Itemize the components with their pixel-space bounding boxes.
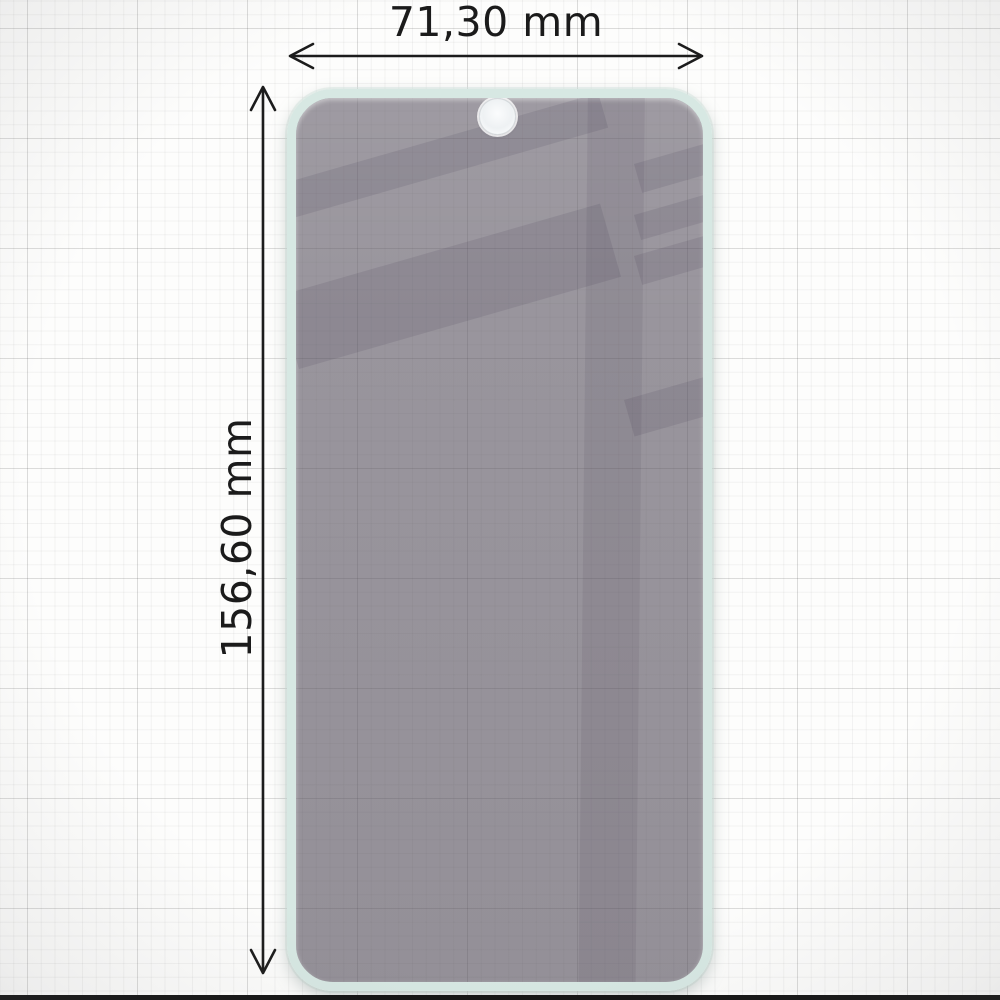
reflection-band-vertical (578, 90, 645, 991)
image-bottom-edge (0, 995, 1000, 1000)
grid-paper-background: 71,30 mm 156,60 mm (0, 0, 1000, 1000)
height-dimension-arrow (246, 82, 280, 978)
camera-hole-icon (479, 98, 516, 135)
screen-protector (287, 89, 712, 991)
width-dimension-arrow (285, 39, 707, 73)
